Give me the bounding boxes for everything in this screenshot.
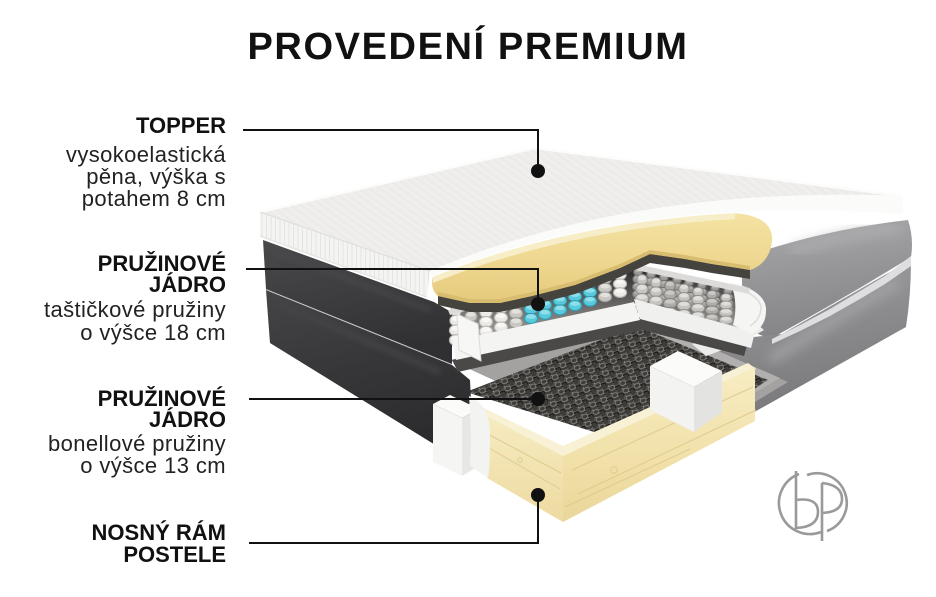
svg-text:JÁDRO: JÁDRO <box>149 272 226 297</box>
svg-text:TOPPER: TOPPER <box>136 113 226 138</box>
svg-text:POSTELE: POSTELE <box>123 542 226 567</box>
svg-text:o výšce 18 cm: o výšce 18 cm <box>80 320 226 345</box>
svg-text:PROVEDENÍ PREMIUM: PROVEDENÍ PREMIUM <box>247 24 688 68</box>
svg-text:o výšce 13 cm: o výšce 13 cm <box>80 453 226 478</box>
svg-text:JÁDRO: JÁDRO <box>149 407 226 432</box>
svg-text:potahem 8 cm: potahem 8 cm <box>82 186 226 211</box>
svg-text:taštičkové pružiny: taštičkové pružiny <box>44 297 226 322</box>
